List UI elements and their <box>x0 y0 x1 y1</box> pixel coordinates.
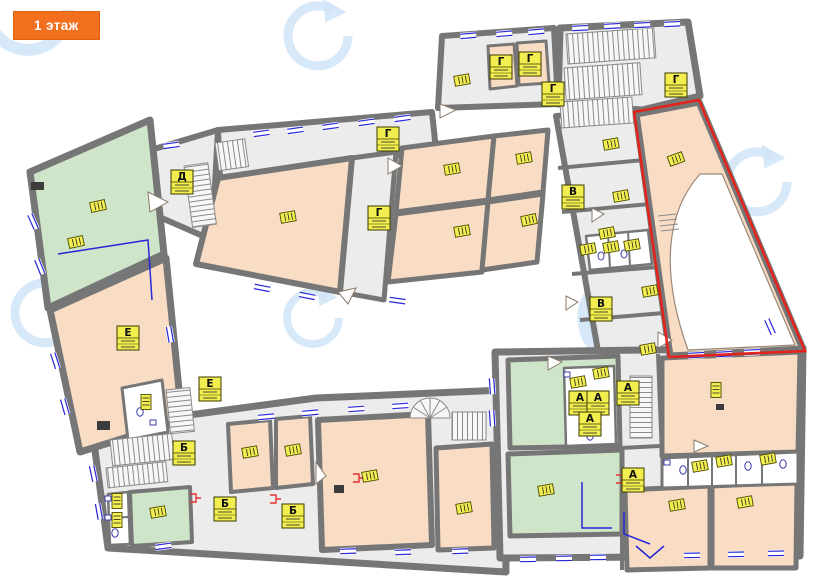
window-marker <box>556 555 572 562</box>
svg-text:Г: Г <box>385 128 392 140</box>
room-label-Г: Г <box>665 73 687 97</box>
window-marker <box>488 410 496 426</box>
svg-text:Г: Г <box>498 56 505 68</box>
wall-divider <box>620 446 660 448</box>
room-pr1 <box>662 352 800 456</box>
stairs-run <box>452 412 486 440</box>
stairs-run <box>560 97 634 128</box>
svg-text:А: А <box>629 469 638 481</box>
window-marker <box>302 409 319 417</box>
room-number-label <box>570 376 587 388</box>
svg-text:Б: Б <box>221 498 229 510</box>
window-marker <box>528 28 545 36</box>
room-bottom-big <box>318 414 432 550</box>
window-marker <box>520 556 536 563</box>
room-bottom-2 <box>436 444 494 550</box>
window-marker <box>728 551 744 558</box>
svg-text:Г: Г <box>376 207 383 219</box>
room-number-label <box>716 455 733 467</box>
room-label-А: А <box>617 381 639 405</box>
floor-plan-page: ГГГГГГДВВЕЕБББААААА 1 этаж <box>0 0 821 580</box>
room-number-label <box>580 243 597 255</box>
stairs-run <box>564 63 642 100</box>
svg-text:В: В <box>569 186 577 198</box>
svg-text:Г: Г <box>550 83 557 95</box>
room-number-label <box>603 241 620 253</box>
room-number-label <box>112 494 122 509</box>
room-number-label <box>624 239 641 251</box>
svg-text:В: В <box>597 298 605 310</box>
window-marker <box>389 296 406 305</box>
room-number-label <box>603 138 620 150</box>
svg-text:А: А <box>594 392 603 404</box>
wc-block-left <box>122 380 168 440</box>
room-number-label <box>141 395 151 410</box>
room-label-А: А <box>622 468 644 492</box>
room-number-label <box>669 499 686 511</box>
stairs-run <box>566 28 656 64</box>
room-number-label <box>456 502 473 514</box>
room-label-Г: Г <box>519 52 541 76</box>
floor-plan-svg: ГГГГГГДВВЕЕБББААААА <box>0 0 821 580</box>
window-marker <box>348 405 364 413</box>
room-label-А: А <box>587 391 609 415</box>
building-layer <box>30 22 803 572</box>
svg-text:Г: Г <box>673 74 680 86</box>
svg-text:Б: Б <box>180 442 188 454</box>
room-pr3 <box>712 482 797 568</box>
room-number-label <box>285 444 302 456</box>
room-label-Б: Б <box>173 441 195 465</box>
window-marker <box>496 30 513 38</box>
room-label-Б: Б <box>214 497 236 521</box>
room-label-Г: Г <box>542 82 564 106</box>
room-number-label <box>642 285 659 297</box>
room-number-label <box>737 496 754 508</box>
room-number-label <box>454 74 471 86</box>
room-t5 <box>488 130 548 200</box>
window-marker <box>604 22 620 30</box>
room-t6 <box>388 202 488 282</box>
window-marker <box>395 548 411 556</box>
room-label-Б: Б <box>282 504 304 528</box>
svg-text:Д: Д <box>177 171 186 183</box>
room-number-label <box>516 152 533 164</box>
floor-badge-label: 1 этаж <box>34 18 79 33</box>
room-label-Г: Г <box>368 206 390 230</box>
room-label-Г: Г <box>377 127 399 151</box>
room-number-label <box>362 470 379 482</box>
room-number-label <box>454 225 471 237</box>
room-number-label <box>640 343 657 355</box>
room-label-Е: Е <box>117 326 139 350</box>
stairs-run <box>166 387 194 433</box>
floor-badge[interactable]: 1 этаж <box>13 11 100 40</box>
window-marker <box>768 550 784 557</box>
room-number-label <box>444 163 461 175</box>
svg-text:Е: Е <box>124 327 131 339</box>
room-label-Д: Д <box>171 170 193 194</box>
room-number-label <box>280 211 297 223</box>
room-label-Е: Е <box>199 377 221 401</box>
room-label-А: А <box>579 412 601 436</box>
watermark-logo <box>288 0 348 66</box>
window-marker <box>572 24 588 32</box>
svg-text:А: А <box>624 382 633 394</box>
room-number-label <box>150 506 167 518</box>
room-number-label <box>599 227 616 239</box>
room-number-label <box>760 453 777 465</box>
window-marker <box>590 554 606 561</box>
room-label-В: В <box>562 185 584 209</box>
window-marker <box>340 547 356 555</box>
window-marker <box>664 20 680 28</box>
room-number-label <box>112 513 122 528</box>
svg-text:Г: Г <box>527 53 534 65</box>
stairs-run <box>215 139 249 171</box>
room-number-label <box>593 367 610 379</box>
window-marker <box>488 378 496 394</box>
svg-text:А: А <box>586 413 595 425</box>
svg-text:Б: Б <box>289 505 297 517</box>
window-marker <box>258 413 275 421</box>
window-marker <box>460 32 477 40</box>
room-label-В: В <box>590 297 612 321</box>
room-number-label <box>242 446 259 458</box>
room-number-label <box>613 190 630 202</box>
svg-text:Е: Е <box>206 378 213 390</box>
window-marker <box>634 21 650 29</box>
svg-text:А: А <box>576 392 585 404</box>
room-t7 <box>482 194 543 270</box>
window-marker <box>452 547 468 555</box>
window-marker <box>392 402 408 410</box>
green-room-right-2 <box>508 450 622 536</box>
room-number-label <box>692 460 709 472</box>
room-number-label <box>538 484 555 496</box>
window-marker <box>684 552 700 559</box>
room-big-peach <box>196 158 352 292</box>
room-number-label <box>711 383 721 398</box>
window-marker <box>254 283 271 293</box>
room-label-Г: Г <box>490 55 512 79</box>
